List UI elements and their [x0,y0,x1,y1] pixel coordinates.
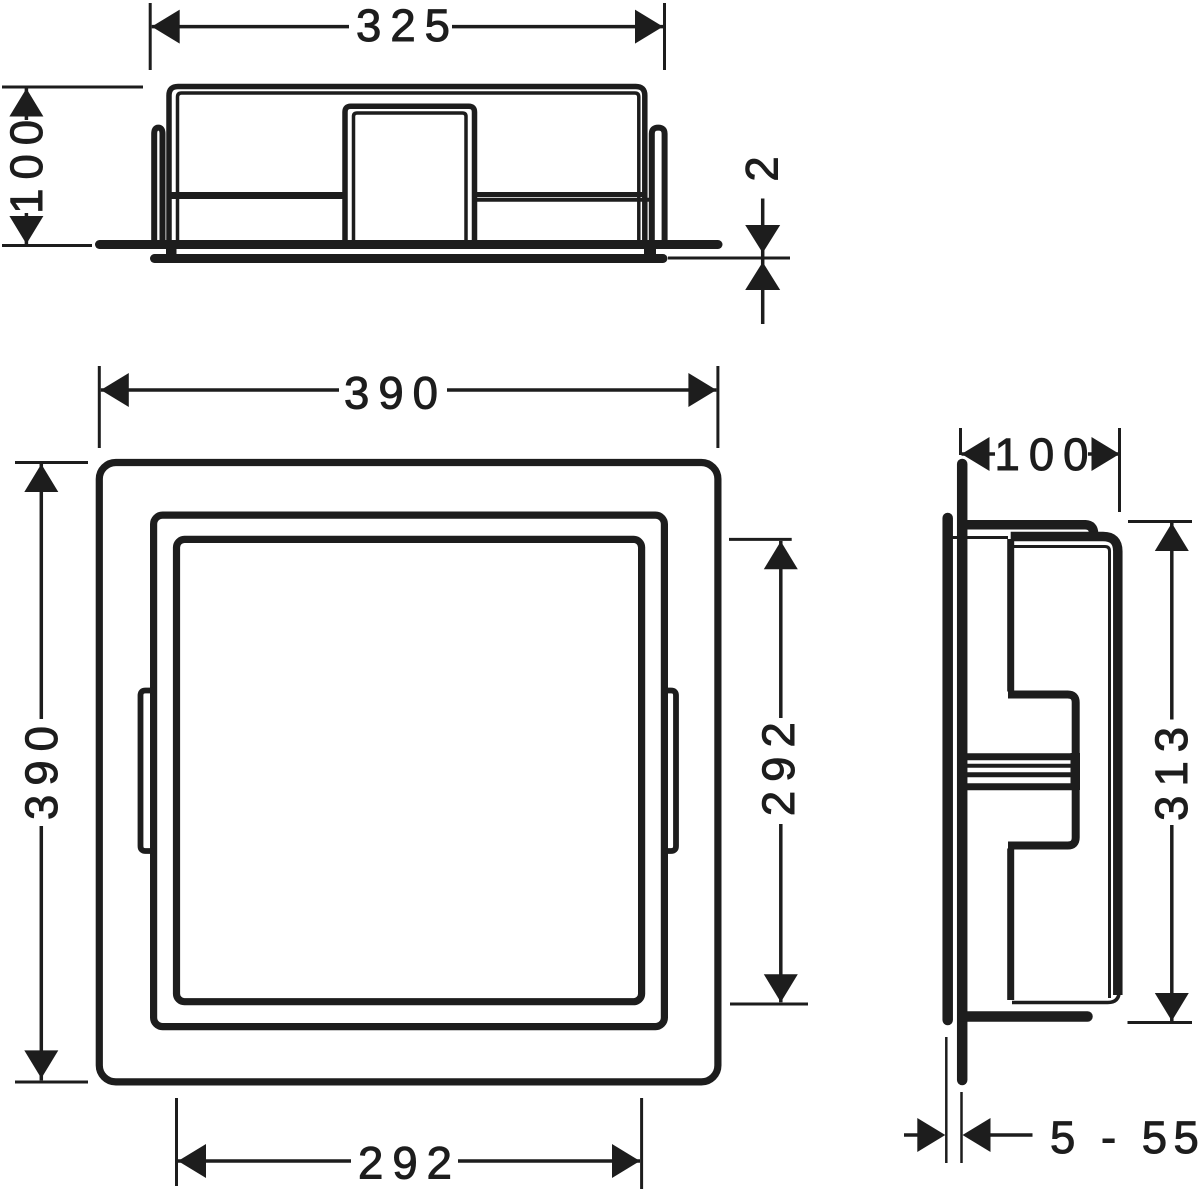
svg-text:2: 2 [737,156,788,181]
svg-text:100: 100 [1,111,52,214]
svg-text:5 - 55: 5 - 55 [1050,1112,1200,1163]
svg-text:313: 313 [1146,718,1197,821]
svg-text:292: 292 [753,713,804,816]
svg-text:292: 292 [358,1138,461,1189]
svg-text:100: 100 [995,429,1098,480]
svg-text:390: 390 [344,368,447,419]
svg-text:390: 390 [16,717,67,820]
svg-text:325: 325 [356,0,459,51]
